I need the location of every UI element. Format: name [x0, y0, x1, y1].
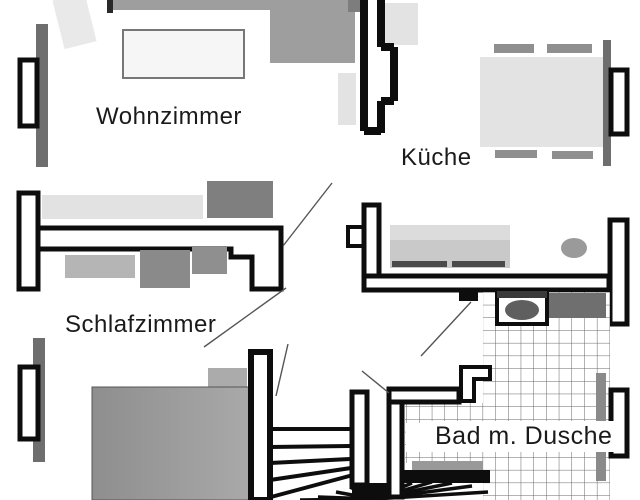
room-label-bad: Bad m. Dusche: [429, 421, 618, 452]
counter-drawer: [392, 261, 447, 267]
wall-stair-left: [251, 352, 270, 500]
kitchen-shelf: [338, 73, 356, 125]
sink-cabinet-edge: [497, 291, 547, 298]
chair: [494, 44, 534, 53]
stair-treads: [270, 429, 353, 497]
wall-bath-left: [389, 389, 402, 497]
room-label-kueche: Küche: [401, 144, 472, 172]
wall-right: [610, 220, 627, 324]
dresser: [207, 181, 273, 218]
chair: [552, 151, 593, 159]
sideboard: [65, 255, 135, 278]
desk: [140, 250, 190, 288]
wall-bedroom-left: [19, 193, 38, 289]
coffee-table: [123, 30, 244, 78]
wardrobe: [42, 195, 203, 219]
armchair: [52, 0, 96, 49]
room-wohnzimmer: [20, 0, 361, 167]
wall-bath-top: [389, 389, 459, 402]
sofa-cushion: [348, 0, 361, 12]
sink-basin: [505, 300, 539, 320]
leader-line: [276, 344, 288, 396]
bed: [92, 387, 250, 500]
leader-line: [421, 302, 471, 356]
chair: [495, 150, 537, 158]
room-schlafzimmer: [19, 181, 281, 500]
counter-top: [390, 225, 510, 240]
kitchen-cabinet: [385, 3, 418, 45]
washing-machine: [549, 293, 606, 318]
sofa-back: [112, 0, 270, 10]
wall-notch: [459, 288, 478, 301]
dining-table: [480, 57, 603, 147]
window-left-bottom: [20, 367, 38, 439]
nightstand: [192, 247, 227, 274]
shower-step: [412, 461, 483, 470]
wall-hallway-left: [364, 205, 379, 285]
wall-stub-top: [107, 0, 113, 13]
floor-plan: Wohnzimmer Küche Schlafzimmer Bad m. Dus…: [0, 0, 640, 500]
sofa: [270, 0, 355, 63]
window-left-top: [20, 60, 37, 126]
room-label-schlafzimmer: Schlafzimmer: [65, 311, 216, 339]
wall-hallway-bottom: [364, 276, 609, 290]
wall-stair-right: [352, 392, 367, 485]
stool: [561, 238, 587, 258]
bed-pillow: [208, 368, 247, 387]
window-right-top: [611, 70, 627, 134]
counter-drawer: [452, 261, 505, 267]
wall-bath-bottom: [403, 470, 490, 483]
room-label-wohnzimmer: Wohnzimmer: [96, 103, 242, 131]
chair: [547, 44, 592, 53]
room-kueche: [338, 0, 627, 166]
leader-line: [283, 183, 332, 246]
